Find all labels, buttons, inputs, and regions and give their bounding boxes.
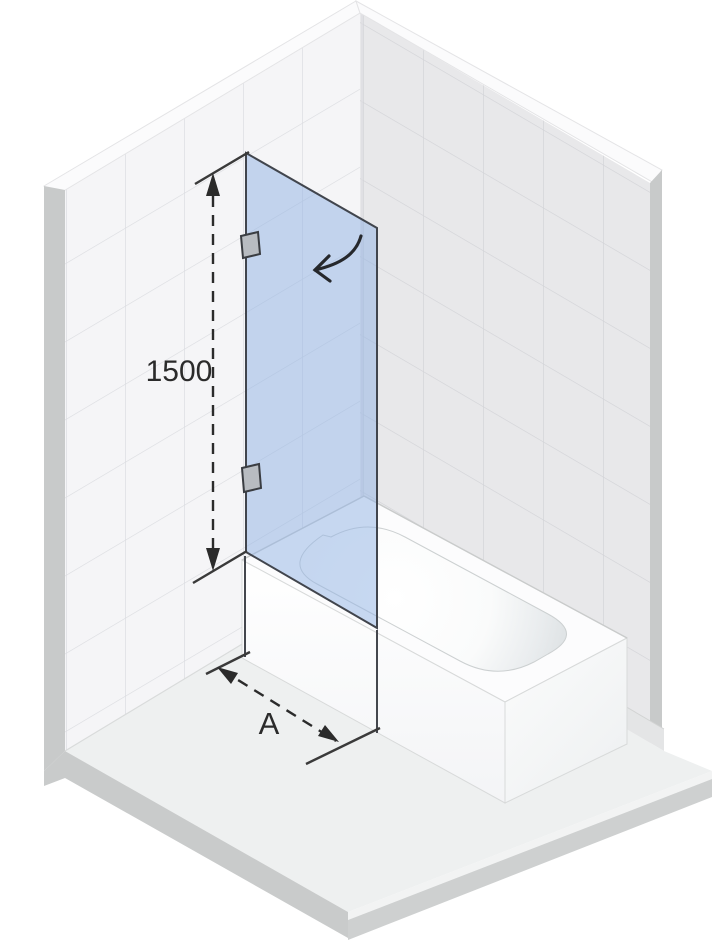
glass-screen bbox=[241, 153, 377, 628]
right-wall-side-edge bbox=[650, 170, 662, 728]
glass-hinge-top bbox=[241, 232, 260, 258]
bath-screen-diagram: 1500 A bbox=[0, 0, 713, 950]
height-dimension-label: 1500 bbox=[146, 355, 213, 388]
left-wall-side-edge bbox=[44, 186, 65, 771]
glass-panel bbox=[246, 153, 377, 628]
diagram-canvas: 1500 A bbox=[0, 0, 713, 950]
glass-hinge-bottom bbox=[242, 464, 261, 492]
width-dimension-label: A bbox=[259, 706, 280, 741]
